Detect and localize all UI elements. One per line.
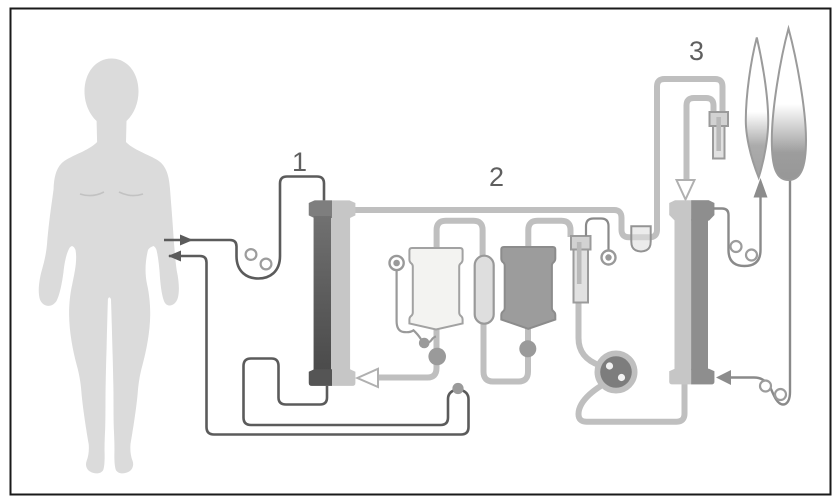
svg-text:3: 3 (689, 36, 704, 66)
svg-text:1: 1 (292, 147, 307, 177)
svg-text:2: 2 (489, 162, 504, 192)
